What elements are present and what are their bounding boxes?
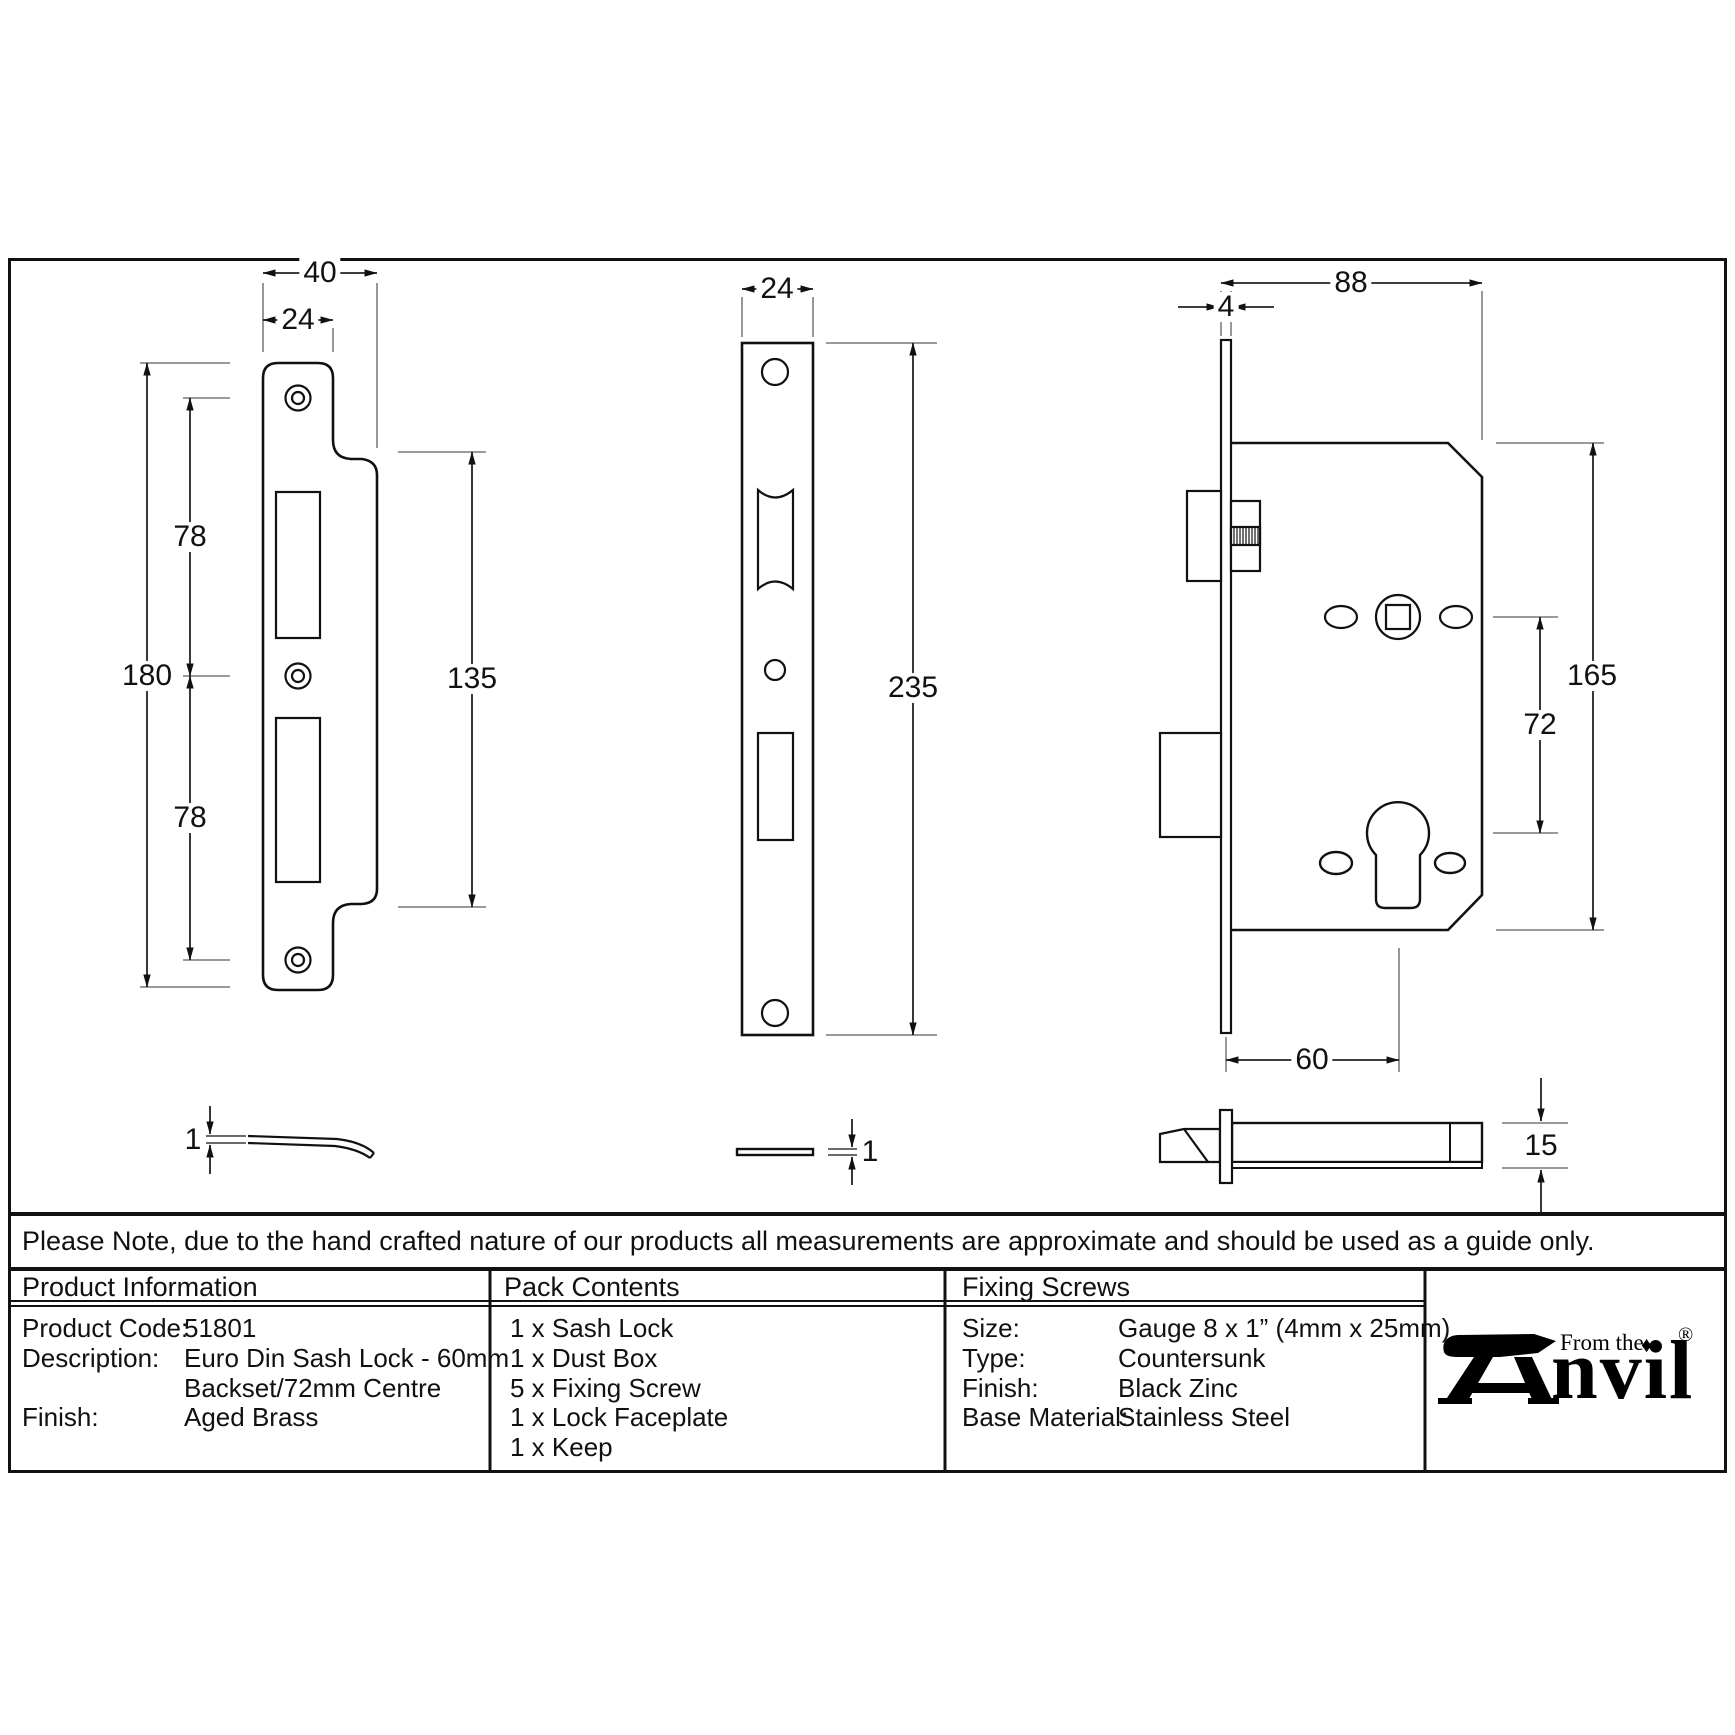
faceplate-front-drawing [742, 289, 937, 1035]
description-value-line2: Backset/72mm Centre [184, 1373, 441, 1403]
pack-item: 1 x Lock Faceplate [510, 1402, 728, 1432]
lock-faceplate-bar [1221, 340, 1231, 1033]
screw-size-value: Gauge 8 x 1” (4mm x 25mm) [1118, 1313, 1450, 1343]
side-latch [1160, 1129, 1220, 1162]
description-label: Description: [22, 1343, 159, 1373]
header-product-information: Product Information [22, 1272, 258, 1303]
side-bottom-strip [1232, 1162, 1482, 1168]
dim-keep-lip-height: 135 [443, 664, 501, 694]
header-fixing-screws: Fixing Screws [962, 1272, 1130, 1303]
screw-finish-value: Black Zinc [1118, 1373, 1238, 1403]
dim-keep-top-spacing: 78 [169, 522, 210, 552]
pack-item: 1 x Dust Box [510, 1343, 657, 1373]
lock-front-drawing [1160, 283, 1604, 1072]
keep-bolt-cutout [276, 718, 320, 882]
dim-keep-overall-width: 40 [299, 258, 340, 288]
pack-item: 1 x Keep [510, 1432, 613, 1462]
dim-lock-case-depth: 15 [1520, 1131, 1561, 1161]
product-code-label: Product Code: [22, 1313, 188, 1343]
dim-faceplate-thickness-side: 1 [858, 1137, 883, 1167]
pack-item: 1 x Sash Lock [510, 1313, 673, 1343]
logo-diamond-icon: ♦ [1641, 1332, 1652, 1358]
keep-latch-cutout [276, 492, 320, 638]
keep-side-drawing [248, 1136, 374, 1158]
dim-keep-inner-width: 24 [277, 305, 318, 335]
dim-lock-body-width: 88 [1330, 268, 1371, 298]
side-case [1232, 1123, 1482, 1162]
side-faceplate-bar [1220, 1110, 1232, 1183]
lock-body-outline [1231, 443, 1482, 930]
finish-value: Aged Brass [184, 1402, 318, 1432]
dim-faceplate-width: 24 [756, 274, 797, 304]
dim-lock-body-height: 165 [1563, 661, 1621, 691]
product-spec-sheet: { "sheet": { "note": "Please Note, due t… [0, 0, 1735, 1735]
latch-knurl-hatch [1234, 527, 1258, 545]
dim-keep-bottom-spacing: 78 [169, 803, 210, 833]
dim-lock-backset: 60 [1291, 1045, 1332, 1075]
technical-drawing-canvas [0, 0, 1735, 1735]
anvil-logo-mark [1438, 1334, 1559, 1404]
keep-side-dimension [206, 1106, 246, 1174]
description-value-line1: Euro Din Sash Lock - 60mm [184, 1343, 509, 1373]
keep-front-drawing [140, 273, 486, 990]
finish-label: Finish: [22, 1402, 99, 1432]
dim-keep-overall-height: 180 [118, 661, 176, 691]
dim-faceplate-height: 235 [884, 673, 942, 703]
pack-item: 5 x Fixing Screw [510, 1373, 701, 1403]
screw-size-label: Size: [962, 1313, 1020, 1343]
measurement-note: Please Note, due to the hand crafted nat… [22, 1226, 1595, 1257]
lock-side-drawing [1160, 1078, 1568, 1213]
product-code-value: 51801 [184, 1313, 256, 1343]
logo-registered-mark: ® [1678, 1324, 1693, 1347]
screw-type-label: Type: [962, 1343, 1026, 1373]
screw-material-value: Stainless Steel [1118, 1402, 1290, 1432]
dim-lock-faceplate-thickness: 4 [1214, 292, 1239, 322]
logo-from-the-text: From the [1560, 1330, 1644, 1356]
dim-keep-thickness: 1 [181, 1125, 206, 1155]
screw-material-label: Base Material: [962, 1402, 1128, 1432]
header-pack-contents: Pack Contents [504, 1272, 680, 1303]
faceplate-side-drawing [737, 1119, 857, 1185]
screw-finish-label: Finish: [962, 1373, 1039, 1403]
screw-type-value: Countersunk [1118, 1343, 1265, 1373]
dim-lock-centres: 72 [1519, 710, 1560, 740]
deadbolt [1160, 733, 1221, 837]
